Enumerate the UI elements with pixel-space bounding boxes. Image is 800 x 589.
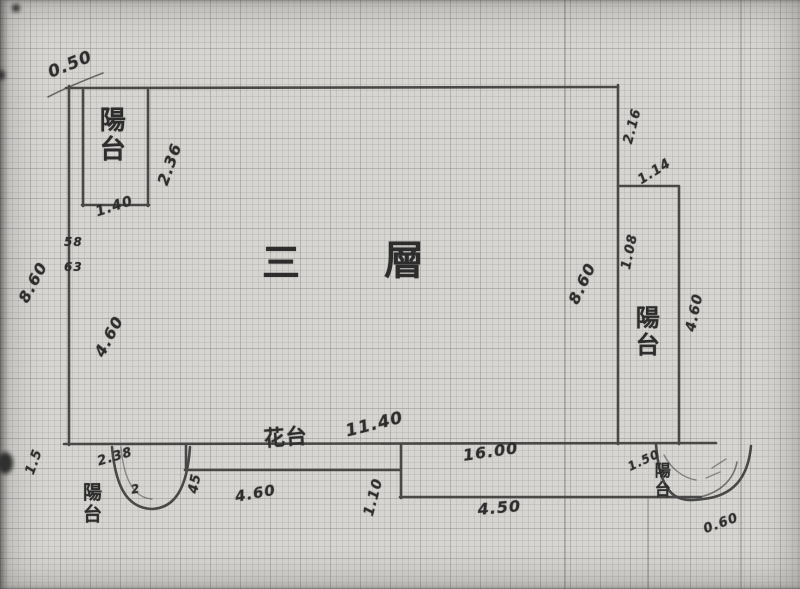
flower-bed-label: 花台 <box>263 425 308 450</box>
dim-bottom-lower-width: 4.50 <box>477 498 522 519</box>
balcony-right-label: 陽台 <box>632 305 657 359</box>
balcony-bottom-right-scribble-3 <box>706 459 726 478</box>
floor-label-first-char: 三 <box>262 244 301 284</box>
balcony-top-left-label: 陽台 <box>96 106 123 164</box>
wall-mark-left-lower: 63 <box>64 261 83 274</box>
wall-mark-left-upper: 58 <box>64 236 83 249</box>
balcony-bottom-left-label: 陽台 <box>80 482 100 526</box>
smudge-top-left-corner <box>12 4 20 12</box>
main-room-top-wall <box>66 87 618 88</box>
main-room-bottom-wall <box>64 443 716 444</box>
balcony-bottom-right-scribble-1 <box>700 462 737 497</box>
graph-paper-sheet: 0.50陽台2.361.408.6058634.60三層11.40花台4.604… <box>0 0 800 589</box>
mark-balcony-bottom-left: 2 <box>130 482 141 496</box>
floor-label-second-char: 層 <box>384 240 425 282</box>
floorplan-drawing <box>0 0 800 589</box>
balcony-bottom-right-label: 陽台 <box>652 462 669 500</box>
